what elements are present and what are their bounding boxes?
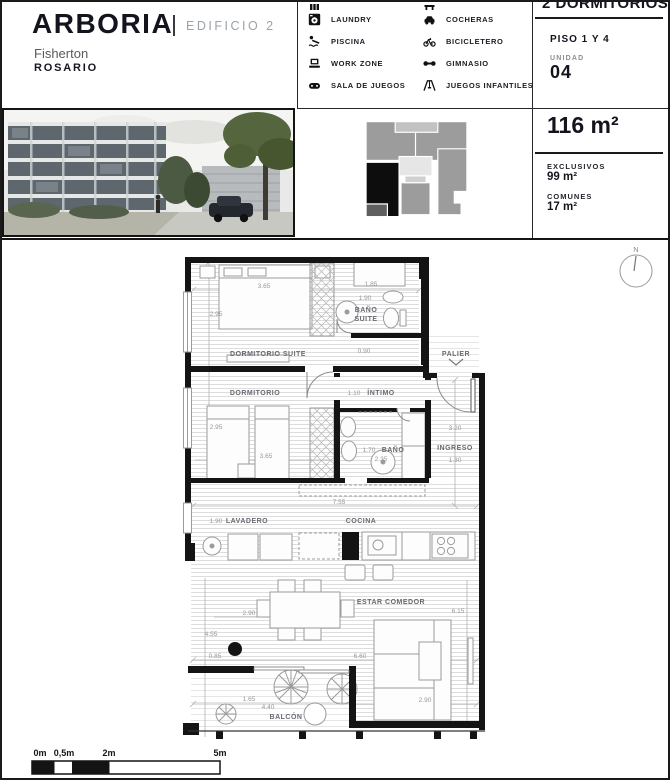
room-label-estar-comedor: ESTAR COMEDOR [357, 599, 425, 606]
dim-suite-height: 2.95 [210, 311, 223, 318]
unit-panel-rule [535, 17, 663, 19]
amenity-label: PISCINA [331, 37, 366, 46]
exclusive-area-value: 99 m² [547, 171, 577, 183]
room-label-bano-suite-2: SUITE [354, 316, 377, 323]
building-edition: EDIFICIO 2 [186, 19, 276, 33]
key-plan [342, 110, 522, 236]
dim-intimo-width: 1.10 [348, 390, 361, 397]
common-area-label: COMUNES [547, 192, 592, 201]
dim-bano-width: 1.70 [363, 447, 376, 454]
amenity-label: BICICLETERO [446, 37, 503, 46]
dim-ingreso-height: 3.20 [449, 425, 462, 432]
key-plan-diagram [342, 110, 522, 236]
compass-north-label: N [633, 245, 638, 254]
dim-cocina-width: 7.55 [333, 499, 346, 506]
location-city: ROSARIO [34, 62, 98, 74]
amenity-item: BICICLETERO [423, 30, 531, 52]
exclusive-area-label: EXCLUSIVOS [547, 162, 605, 171]
unit-number: 04 [550, 62, 572, 83]
dim-banosuite-height: 1.90 [359, 295, 372, 302]
bike-icon [423, 35, 436, 48]
room-label-palier: PALIER [442, 351, 470, 358]
dim-suite-width: 3.65 [258, 283, 271, 290]
dim-ingreso-width: 1.30 [449, 457, 462, 464]
amenity-item: SALA DE JUEGOS [308, 74, 416, 96]
parking-icon [423, 13, 436, 26]
header-divider-v1 [297, 2, 298, 108]
dim-banosuite-door: 0.90 [358, 348, 371, 355]
floor-label: PISO 1 Y 4 [550, 34, 610, 45]
amenity-row: LAUNDRY COCHERAS [297, 8, 532, 30]
brand-divider [173, 15, 175, 36]
amenity-item: COCHERAS [423, 8, 531, 30]
amenity-item: PISCINA [308, 30, 416, 52]
dim-dorm-height: 2.95 [210, 424, 223, 431]
scale-label-2: 2m [102, 748, 115, 758]
amenity-row: SALA DE JUEGOS JUEGOS INFANTILES [297, 74, 532, 96]
room-label-dormitorio-suite: DORMITORIO SUITE [230, 351, 306, 358]
scale-label-5: 5m [213, 748, 226, 758]
brand-title: ARBORIA [32, 8, 173, 40]
total-area: 116 m² [547, 112, 619, 139]
header-divider-v2 [532, 2, 533, 238]
gameroom-icon [308, 79, 321, 92]
room-label-bano: BAÑO [382, 445, 405, 454]
building-render [4, 110, 293, 235]
amenity-row: PISCINA BICICLETERO [297, 30, 532, 52]
dim-balcon-width: 4.40 [262, 704, 275, 711]
amenity-item: JUEGOS INFANTILES [423, 74, 531, 96]
room-label-intimo: ÍNTIMO [367, 388, 395, 397]
dim-sofa-width: 2.90 [419, 697, 432, 704]
room-label-dormitorio: DORMITORIO [230, 390, 280, 397]
amenity-label: JUEGOS INFANTILES [446, 81, 532, 90]
unit-type-title: 2 DORMITORIOS [542, 0, 668, 12]
amenity-label: LAUNDRY [331, 15, 372, 24]
floor-plan: DORMITORIO SUITE BAÑO SUITE DORMITORIO Í… [2, 240, 670, 780]
room-label-lavadero: LAVADERO [226, 518, 268, 525]
building-photo [2, 108, 295, 237]
playground-icon [423, 79, 436, 92]
room-label-ingreso: INGRESO [437, 445, 473, 452]
room-label-bano-suite: BAÑO [355, 305, 378, 314]
amenity-label: SALA DE JUEGOS [331, 81, 405, 90]
laundry-icon [308, 13, 321, 26]
common-area-value: 17 m² [547, 201, 577, 213]
dim-estar-offset: 0.85 [209, 653, 222, 660]
amenity-label: GIMNASIO [446, 59, 489, 68]
amenity-label: COCHERAS [446, 15, 494, 24]
amenity-item: GIMNASIO [423, 52, 531, 74]
amenity-label: WORK ZONE [331, 59, 383, 68]
brochure-page: ARBORIA EDIFICIO 2 Fisherton ROSARIO [0, 0, 670, 780]
compass: N [620, 245, 652, 287]
dim-estar-left: 4.55 [205, 631, 218, 638]
room-label-cocina: COCINA [346, 518, 377, 525]
dim-estar-height: 6.15 [452, 608, 465, 615]
dim-balcon-height: 1.65 [243, 696, 256, 703]
location-area: Fisherton [34, 46, 88, 61]
pool-icon [308, 35, 321, 48]
room-label-balcon: BALCÓN [270, 712, 303, 721]
amenities-list: LAUNDRY COCHERAS PISCINA BICICLE [297, 2, 532, 108]
amenity-item: LAUNDRY [308, 8, 416, 30]
dim-lavadero-width: 1.90 [210, 518, 223, 525]
dim-table-width: 2.90 [243, 610, 256, 617]
workzone-icon [308, 57, 321, 70]
scale-bar: 0m 0,5m 2m 5m [32, 748, 227, 774]
scale-label-0: 0m [33, 748, 46, 758]
amenity-row: WORK ZONE GIMNASIO [297, 52, 532, 74]
unit-label: UNIDAD [550, 55, 584, 62]
compass-needle [634, 256, 636, 271]
dim-banosuite-width: 1.85 [365, 281, 378, 288]
dim-bano-length: 2.35 [375, 456, 388, 463]
header-divider-h1 [297, 108, 670, 109]
gym-icon [423, 57, 436, 70]
scale-label-05: 0,5m [54, 748, 75, 758]
area-panel-rule [535, 152, 663, 154]
amenity-item: WORK ZONE [308, 52, 416, 74]
dim-estar-width: 6.60 [354, 653, 367, 660]
dim-dorm-width: 3.65 [260, 453, 273, 460]
